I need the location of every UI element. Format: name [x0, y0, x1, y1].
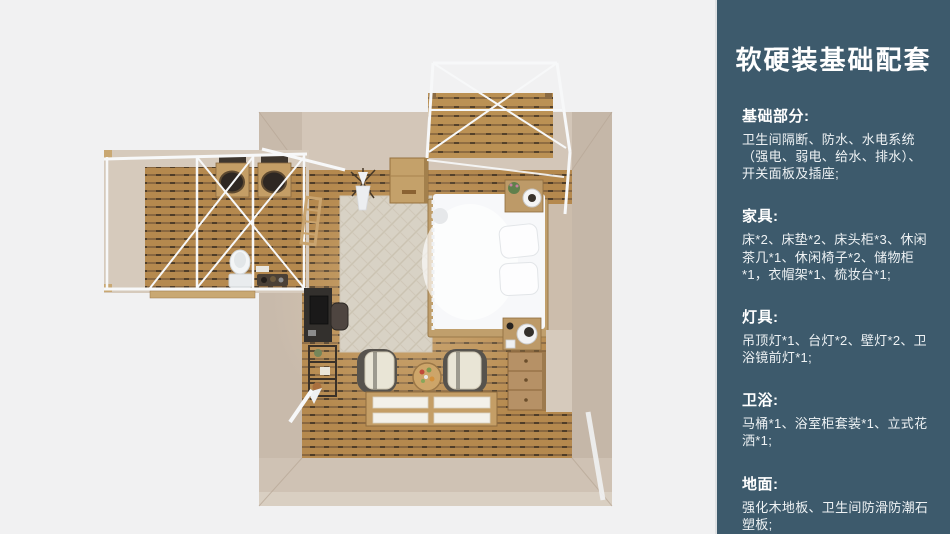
- section-body: 马桶*1、浴室柜套装*1、立式花洒*1;: [742, 415, 934, 449]
- storage-cabinet: [390, 158, 428, 203]
- section-furniture: 家具: 床*2、床垫*2、床头柜*3、休闲茶几*1、休闲椅子*2、储物柜*1，衣…: [742, 205, 934, 282]
- area-rug: [340, 196, 432, 352]
- section-heading: 卫浴:: [742, 389, 934, 410]
- section-heading: 家具:: [742, 205, 934, 226]
- pillow: [499, 262, 539, 296]
- coffee-table: [413, 363, 441, 391]
- bathroom-wing: [104, 150, 309, 298]
- double-bed: [422, 194, 548, 337]
- feather-decor: [432, 208, 448, 224]
- sidebar: 软硬装基础配套 基础部分: 卫生间隔断、防水、水电系统（强电、弱电、给水、排水）…: [715, 0, 950, 534]
- armchair-right: [443, 349, 487, 393]
- section-body: 吊顶灯*1、台灯*2、壁灯*2、卫浴镜前灯*1;: [742, 332, 934, 366]
- section-lighting: 灯具: 吊顶灯*1、台灯*2、壁灯*2、卫浴镜前灯*1;: [742, 306, 934, 366]
- section-heading: 地面:: [742, 473, 934, 494]
- section-heading: 灯具:: [742, 306, 934, 327]
- nightstand-bottom: [503, 318, 541, 350]
- floorplan-render: [0, 0, 715, 534]
- section-body: 卫生间隔断、防水、水电系统（强电、弱电、给水、排水）、开关面板及插座;: [742, 131, 934, 182]
- plant: [508, 182, 520, 194]
- armchair-left: [357, 349, 397, 393]
- section-bathroom: 卫浴: 马桶*1、浴室柜套装*1、立式花洒*1;: [742, 389, 934, 449]
- section-basics: 基础部分: 卫生间隔断、防水、水电系统（强电、弱电、给水、排水）、开关面板及插座…: [742, 105, 934, 182]
- section-heading: 基础部分:: [742, 105, 934, 126]
- nightstand-top: [505, 180, 543, 212]
- section-flooring: 地面: 强化木地板、卫生间防滑防潮石塑板;: [742, 473, 934, 533]
- floorplan-panel: [0, 0, 715, 534]
- desk-chair: [331, 303, 348, 330]
- wardrobe-panel: [546, 330, 572, 412]
- headboard-panel: [545, 204, 572, 336]
- section-body: 床*2、床垫*2、床头柜*3、休闲茶几*1、休闲椅子*2、储物柜*1，衣帽架*1…: [742, 231, 934, 282]
- balcony-deck: [428, 93, 553, 158]
- pillow: [498, 223, 539, 259]
- dresser: [508, 352, 548, 410]
- slide: 软硬装基础配套 基础部分: 卫生间隔断、防水、水电系统（强电、弱电、给水、排水）…: [0, 0, 950, 534]
- floor-window: [366, 392, 497, 426]
- desk: [304, 288, 332, 342]
- section-body: 强化木地板、卫生间防滑防潮石塑板;: [742, 499, 934, 533]
- bathroom-step: [150, 291, 255, 298]
- toilet: [229, 250, 252, 287]
- sidebar-title: 软硬装基础配套: [733, 40, 934, 77]
